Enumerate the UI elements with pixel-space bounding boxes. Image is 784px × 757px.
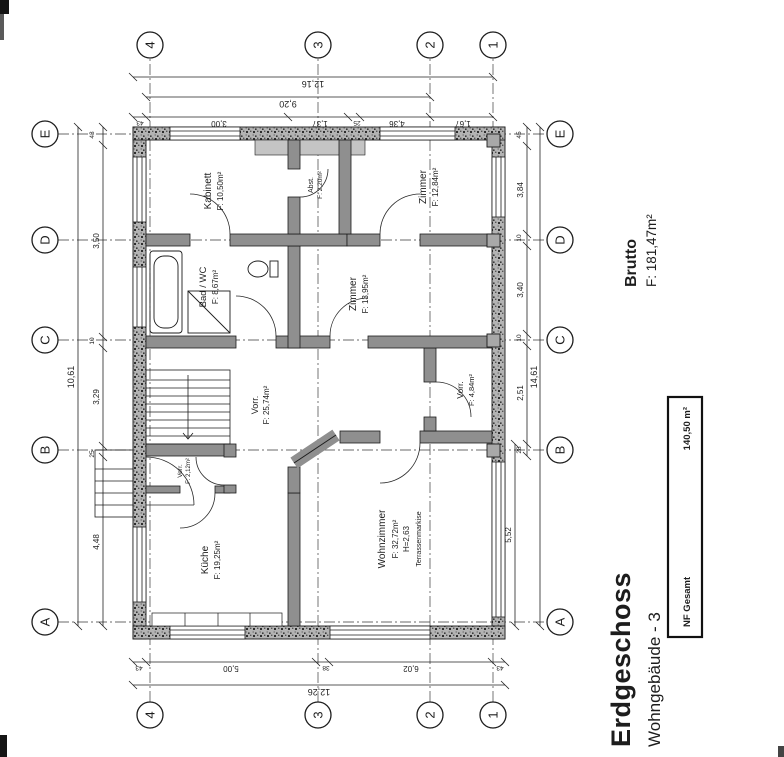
dim-left-seg: 43	[496, 664, 504, 671]
dim-top-seg: 3,29	[92, 389, 101, 405]
wc	[248, 261, 268, 277]
grid-letter: B	[553, 446, 568, 455]
room-area: F: 4,84m²	[467, 373, 476, 406]
room-name: Vorr.	[455, 381, 465, 398]
room-area: F: 2,20m²	[317, 170, 324, 199]
dim-top-seg: 3,50	[92, 233, 101, 249]
dim-left-seg: 5,00	[223, 664, 239, 673]
grid-number: 1	[486, 41, 501, 48]
dim-bottom-seg: 28	[516, 446, 523, 454]
grid-number: 3	[311, 711, 326, 718]
room-height: H=2,63	[402, 525, 411, 552]
page-title: Erdgeschoss	[606, 572, 636, 747]
grid-number: 2	[423, 41, 438, 48]
grid-letter: A	[38, 617, 53, 626]
dim-bottom-seg: 10	[516, 334, 523, 342]
grid-letter: E	[553, 129, 568, 138]
grid-number: 2	[423, 711, 438, 718]
windows	[133, 127, 505, 639]
grid-letter: D	[38, 235, 53, 244]
grid-number: 3	[311, 41, 326, 48]
dim-right-seg: 25	[353, 119, 361, 126]
dim-left-seg: 6,02	[403, 664, 419, 673]
room-name: Wohnzimmer	[377, 509, 388, 568]
dim-right-span: 9,20	[279, 99, 297, 109]
scan-artifact	[0, 735, 7, 757]
dim-top-seg: 4,48	[92, 534, 101, 550]
grid-letter: E	[38, 129, 53, 138]
dim-bottom-seg: 3,84	[516, 182, 525, 198]
room-name: Zimmer	[418, 169, 429, 204]
scan-artifact	[778, 746, 784, 757]
dim-left-overall: 12,26	[308, 687, 331, 697]
dim-left-seg: 38	[322, 664, 330, 671]
room-name: Bad / WC	[198, 267, 209, 308]
stairs	[146, 370, 230, 444]
grid-number: 4	[143, 711, 158, 718]
interior-walls	[146, 140, 492, 626]
dim-top-overall: 10,61	[66, 366, 76, 389]
dim-right-seg: 43	[136, 119, 144, 126]
dim-right-overall: 12,16	[302, 79, 325, 89]
dim-bottom-overall: 14,61	[529, 366, 539, 389]
room-name: Vorr.	[177, 464, 184, 478]
room-area: F: 13,95m²	[361, 274, 370, 313]
room-name: Vorr.	[250, 396, 260, 415]
scan-artifact	[0, 0, 9, 14]
title-block: Erdgeschoss Wohngebäude - 3 Brutto F: 18…	[606, 214, 702, 747]
nf-value: 140,50 m²	[682, 407, 693, 450]
page-subtitle: Wohngebäude - 3	[645, 612, 664, 747]
grid-letter: A	[553, 617, 568, 626]
room-area: F: 12,84m²	[431, 167, 440, 206]
brutto-area: F: 181,47m²	[644, 214, 659, 287]
room-area: F: 10,50m²	[216, 171, 225, 210]
grid-letter: C	[553, 335, 568, 344]
room-name: Küche	[200, 545, 211, 574]
room-area: F: 8,67m²	[211, 270, 220, 305]
dim-bottom-seg: 3,40	[516, 282, 525, 298]
room-area: F: 19,25m²	[213, 540, 222, 579]
rotated-plan-canvas: 10,61 4,48 25 3,29 10 3,50 43 5,52 28 2,…	[0, 0, 784, 757]
grid-letter: B	[38, 446, 53, 455]
exterior-walls	[133, 127, 505, 639]
brutto-label: Brutto	[623, 239, 640, 287]
grid-number: 4	[143, 41, 158, 48]
kitchen-counter	[152, 613, 282, 626]
dim-bottom-seg: 2,51	[516, 385, 525, 401]
grid-letter: C	[38, 335, 53, 344]
doors	[146, 169, 471, 528]
room-area: F: 32,72m²	[391, 519, 400, 558]
entrance-steps	[95, 450, 133, 517]
dim-top-seg: 10	[89, 337, 96, 345]
room-name: Kabinett	[203, 172, 214, 209]
grid-number: 1	[486, 711, 501, 718]
room-note: Terrassenmarkise	[416, 511, 423, 566]
scan-artifact	[0, 14, 4, 40]
floorplan-drawing: 10,61 4,48 25 3,29 10 3,50 43 5,52 28 2,…	[0, 0, 784, 757]
nf-label: NF Gesamt	[682, 576, 693, 627]
dim-top-seg: 43	[89, 131, 96, 139]
dim-bottom-seg: 10	[516, 234, 523, 242]
room-area: F: 2,12m²	[186, 458, 192, 484]
room-name: Abst.	[308, 177, 315, 193]
room-area: F: 25,74m²	[262, 385, 271, 424]
dim-bottom-seg: 45	[516, 131, 523, 139]
room-name: Zimmer	[348, 276, 359, 311]
dim-left-seg: 43	[135, 664, 143, 671]
grid-letter: D	[553, 235, 568, 244]
